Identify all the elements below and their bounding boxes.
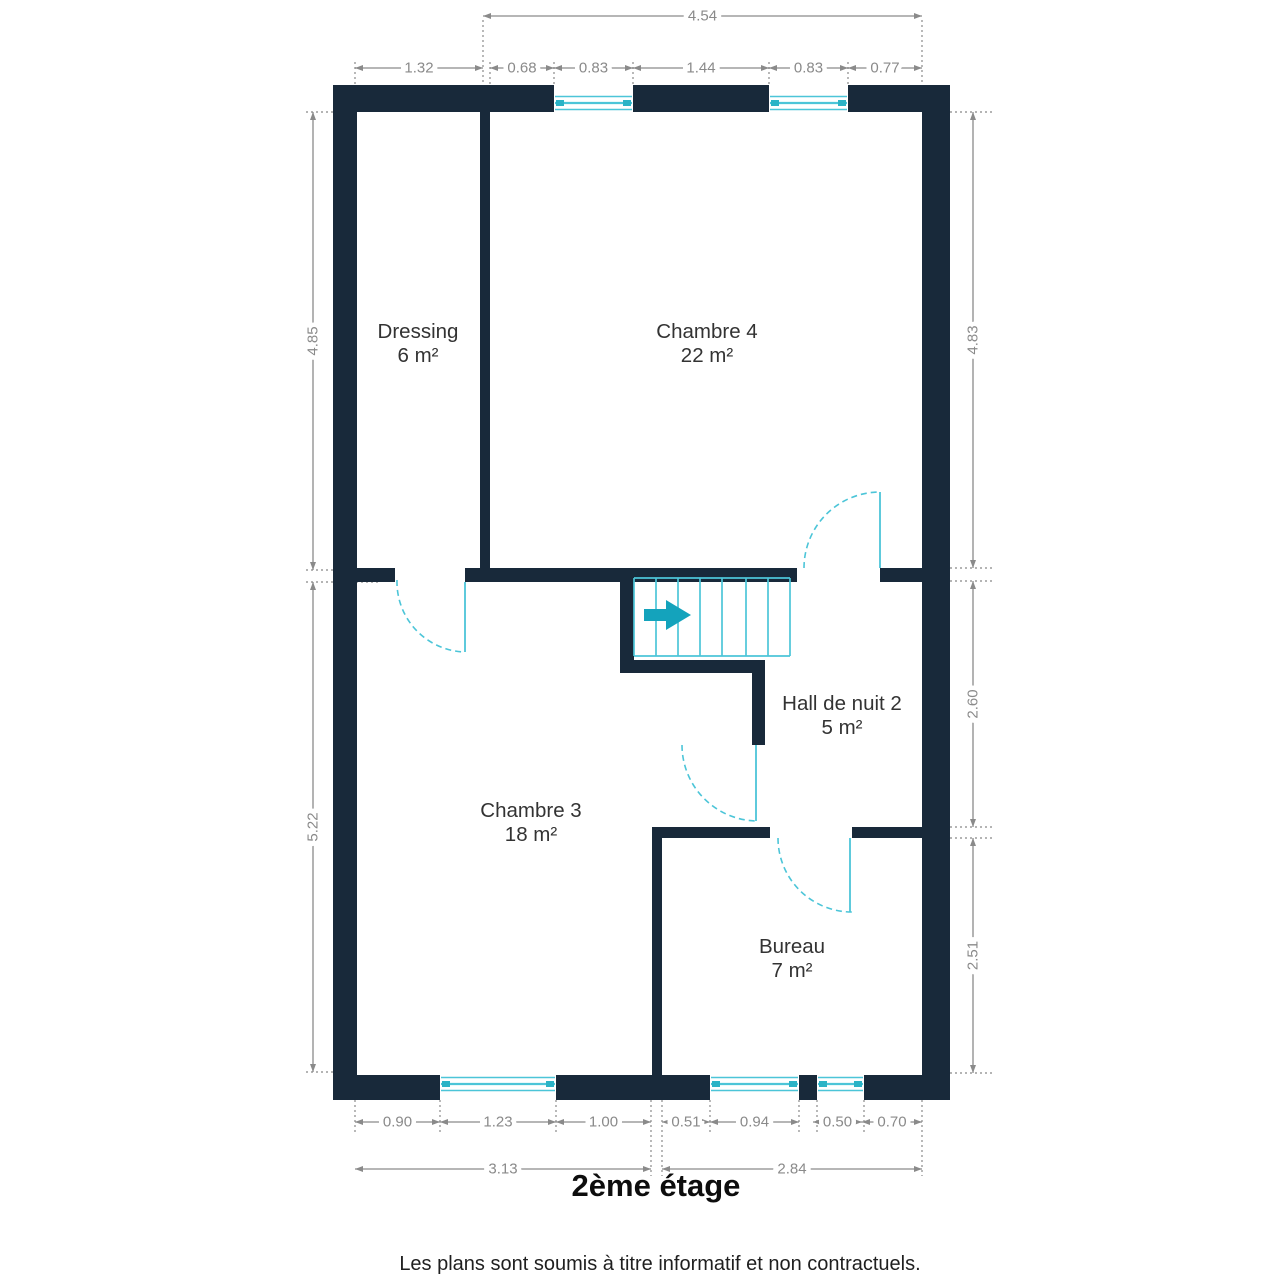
dimension-arrowhead [355, 1119, 363, 1125]
room-label: Chambre 422 m² [656, 320, 757, 368]
window-sash-end [556, 100, 564, 106]
dimension-arrowhead [310, 112, 316, 120]
dimension-arrowhead [854, 1119, 862, 1125]
dimension-arrowhead [970, 581, 976, 589]
dimension-arrowhead [970, 838, 976, 846]
dimension-label: 2.60 [965, 689, 982, 718]
dimension-arrowhead [769, 65, 777, 71]
window-sash-end [712, 1081, 720, 1087]
dimension-arrowhead [556, 1119, 564, 1125]
dimension-arrowhead [310, 582, 316, 590]
wall [652, 838, 662, 1075]
dimension-arrowhead [355, 65, 363, 71]
dimension-label: 0.94 [740, 1114, 769, 1131]
floor-title: 2ème étage [456, 1168, 856, 1204]
room-label: Chambre 318 m² [480, 799, 581, 847]
wall [333, 568, 395, 582]
window-sash-end [442, 1081, 450, 1087]
wall [333, 85, 950, 112]
dimension-arrowhead [662, 1119, 670, 1125]
dimension-arrowhead [914, 1119, 922, 1125]
room-name: Bureau [759, 935, 825, 959]
dimension-label: 0.90 [383, 1114, 412, 1131]
dimension-label: 1.23 [483, 1114, 512, 1131]
room-name: Chambre 4 [656, 320, 757, 344]
room-label: Dressing6 m² [378, 320, 459, 368]
room-label: Hall de nuit 25 m² [782, 692, 902, 740]
dimension-arrowhead [813, 1119, 821, 1125]
room-label: Bureau7 m² [759, 935, 825, 983]
room-name: Chambre 3 [480, 799, 581, 823]
dimension-arrowhead [761, 65, 769, 71]
dimension-arrowhead [791, 1119, 799, 1125]
window-opening [554, 85, 633, 112]
dimension-arrowhead [840, 65, 848, 71]
window-opening [769, 85, 848, 112]
window-sash-end [623, 100, 631, 106]
dimension-arrowhead [970, 819, 976, 827]
room-area: 22 m² [656, 344, 757, 368]
door-swing-arc [804, 492, 880, 568]
dimension-arrowhead [914, 65, 922, 71]
floor-plan-svg: 4.541.320.680.831.440.830.774.855.224.83… [0, 0, 1280, 1280]
disclaimer-text: Les plans sont soumis à titre informatif… [360, 1253, 960, 1276]
wall [620, 578, 634, 660]
wall [752, 660, 765, 745]
dimension-label: 0.68 [507, 60, 536, 77]
window-sash-end [819, 1081, 827, 1087]
dimension-label: 0.50 [823, 1114, 852, 1131]
window-opening [710, 1075, 799, 1100]
dimension-arrowhead [355, 1166, 363, 1172]
dimension-arrowhead [490, 65, 498, 71]
dimension-label: 1.44 [686, 60, 715, 77]
dimension-arrowhead [643, 1119, 651, 1125]
dimension-arrowhead [310, 1064, 316, 1072]
dimension-arrowhead [432, 1119, 440, 1125]
dimension-arrowhead [710, 1119, 718, 1125]
dimension-arrowhead [475, 65, 483, 71]
dimension-arrowhead [914, 1166, 922, 1172]
floor-plan: 4.541.320.680.831.440.830.774.855.224.83… [0, 0, 1280, 1280]
dimension-arrowhead [546, 65, 554, 71]
dimension-arrowhead [970, 1065, 976, 1073]
window-opening [440, 1075, 556, 1100]
dimension-arrowhead [862, 1119, 870, 1125]
dimension-arrowhead [914, 13, 922, 19]
room-area: 5 m² [782, 716, 902, 740]
dimension-label: 0.77 [870, 60, 899, 77]
dimension-label: 0.70 [877, 1114, 906, 1131]
room-area: 7 m² [759, 959, 825, 983]
dimension-arrowhead [310, 562, 316, 570]
dimension-label: 5.22 [305, 812, 322, 841]
dimension-label: 4.85 [305, 326, 322, 355]
dimension-label: 0.83 [579, 60, 608, 77]
dimension-arrowhead [848, 65, 856, 71]
dimension-arrowhead [440, 1119, 448, 1125]
wall [922, 85, 950, 1100]
dimension-label: 1.00 [589, 1114, 618, 1131]
dimension-label: 0.83 [794, 60, 823, 77]
dimension-arrowhead [970, 560, 976, 568]
dimension-arrowhead [702, 1119, 710, 1125]
dimension-arrowhead [970, 112, 976, 120]
dimension-label: 2.51 [965, 941, 982, 970]
wall [480, 112, 490, 568]
room-area: 18 m² [480, 823, 581, 847]
dimension-arrowhead [625, 65, 633, 71]
window-sash-end [546, 1081, 554, 1087]
dimension-label: 0.51 [671, 1114, 700, 1131]
window-sash-end [771, 100, 779, 106]
window-sash-end [838, 100, 846, 106]
dimension-arrowhead [483, 13, 491, 19]
wall [333, 85, 357, 1100]
dimension-label: 4.83 [965, 325, 982, 354]
room-name: Dressing [378, 320, 459, 344]
dimension-label: 1.32 [404, 60, 433, 77]
wall [652, 827, 770, 838]
door-swing-arc [778, 838, 852, 912]
room-name: Hall de nuit 2 [782, 692, 902, 716]
window-sash-end [854, 1081, 862, 1087]
dimension-arrowhead [548, 1119, 556, 1125]
room-area: 6 m² [378, 344, 459, 368]
door-swing-arc [682, 745, 758, 821]
dimension-label: 4.54 [688, 8, 717, 25]
window-opening [817, 1075, 864, 1100]
wall [852, 827, 922, 838]
wall [880, 568, 922, 582]
stairs-direction-arrow-icon [644, 600, 691, 630]
wall [620, 660, 765, 673]
dimension-arrowhead [633, 65, 641, 71]
door-swing-arc [397, 580, 465, 652]
dimension-arrowhead [554, 65, 562, 71]
window-sash-end [789, 1081, 797, 1087]
